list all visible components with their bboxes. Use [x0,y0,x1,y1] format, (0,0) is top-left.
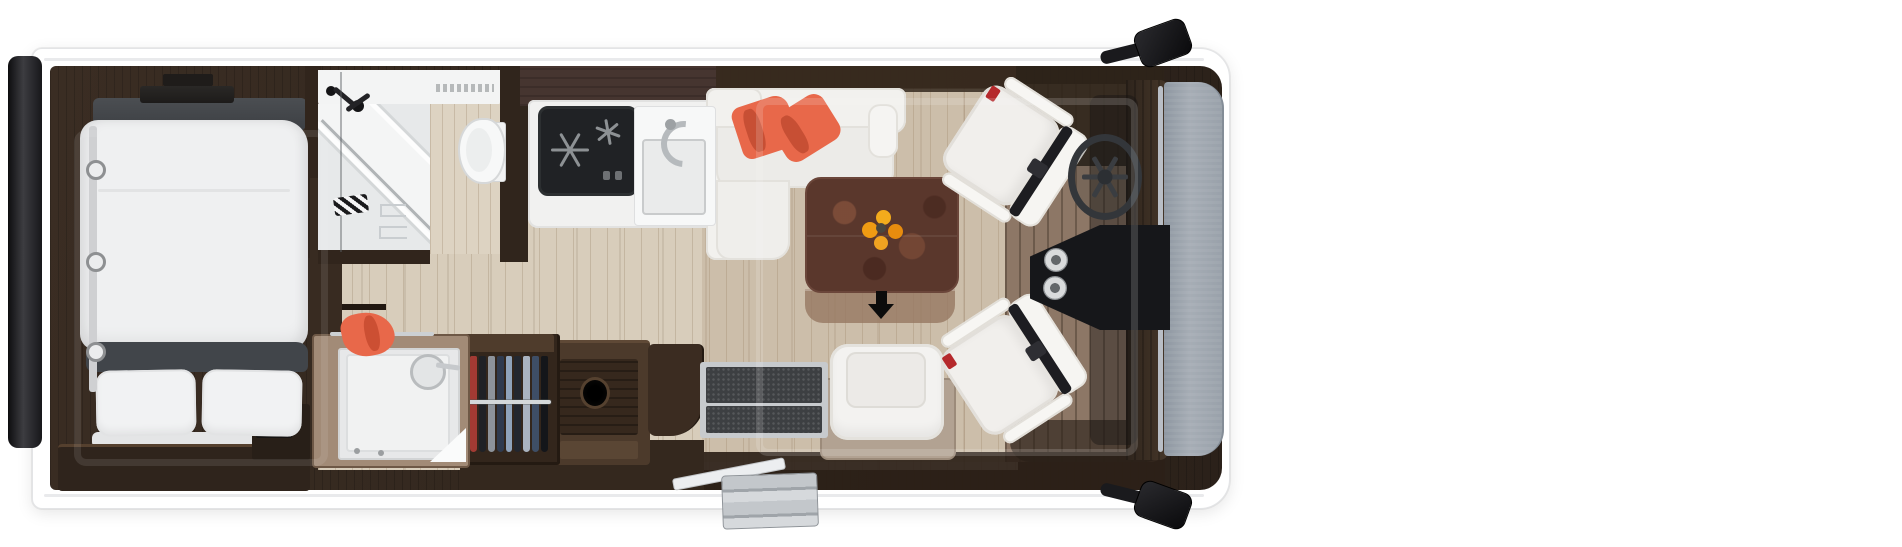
motorhome-floorplan [0,0,1902,547]
drain-icon [354,448,360,454]
shower-tray [318,104,430,252]
sideboard [552,340,650,465]
hob-knob [603,171,610,180]
rear-bumper-bar [8,56,42,448]
roof-window-outline-bedroom [74,130,328,466]
roof-edge-line-top [44,58,1204,61]
toilet [458,118,506,184]
cab-hood [1164,82,1224,456]
cupholder-icon [1044,248,1068,272]
wardrobe-counter [464,334,554,352]
door-handle [380,204,406,217]
door-handle [379,226,407,239]
sideboard-lower-shelf [560,441,638,459]
burner-grid-icon [551,131,589,169]
folding-entry-steps [721,472,819,529]
shower-door-glass [340,72,342,252]
hanging-wardrobe [464,334,560,465]
cupholder-icon [1043,276,1067,300]
burner-grid-icon [595,119,621,145]
shelf [342,304,386,310]
faucet-base [665,119,676,130]
clothes-rail [467,400,551,404]
hanging-clothes [470,356,548,452]
roof-window-outline-lounge [756,98,1138,456]
hob-knob [615,171,622,180]
corner-shower [318,104,430,252]
kitchen-sink [634,106,716,226]
toilet-lid [466,128,492,172]
curved-cabinet [648,344,704,436]
bathroom-bottom-wall [318,250,430,264]
bottle-holder-icon [580,377,610,409]
vent-slots [436,84,494,92]
tv [140,86,234,103]
hand-shower-icon [410,354,446,390]
tv-bracket [163,74,213,86]
roof-edge-line-bottom [44,494,1204,497]
drain-icon [378,450,384,456]
gas-hob [538,106,638,196]
